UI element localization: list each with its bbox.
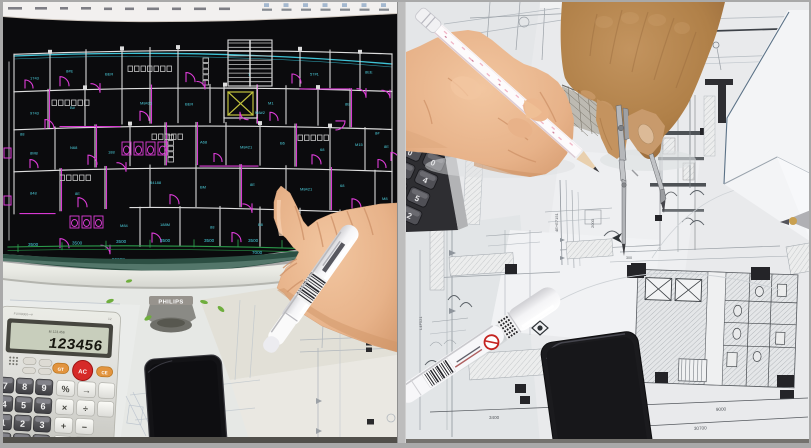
svg-text:300: 300: [626, 256, 632, 260]
svg-text:+: +: [61, 421, 67, 431]
svg-text:4E+E7151: 4E+E7151: [554, 212, 559, 232]
svg-text:3500: 3500: [72, 240, 83, 245]
svg-text:8E: 8E: [384, 144, 389, 149]
svg-text:88: 88: [210, 225, 215, 230]
svg-text:−: −: [82, 422, 88, 432]
svg-text:×: ×: [62, 402, 68, 412]
svg-text:3500: 3500: [116, 239, 127, 244]
svg-text:9743: 9743: [30, 111, 40, 116]
svg-text:8M8: 8M8: [30, 151, 39, 156]
svg-text:BM: BM: [200, 185, 206, 190]
svg-text:3500: 3500: [204, 238, 215, 243]
svg-text:GT: GT: [57, 367, 64, 372]
svg-text:8: 8: [22, 382, 28, 392]
svg-text:→: →: [82, 385, 92, 395]
svg-text:6: 6: [40, 401, 46, 411]
svg-text:68: 68: [340, 183, 345, 188]
svg-text:3: 3: [39, 420, 45, 430]
svg-text:M8421: M8421: [240, 145, 253, 150]
svg-text:L4F521: L4F521: [418, 316, 423, 330]
svg-text:3500: 3500: [28, 242, 39, 247]
svg-text:8E: 8E: [75, 191, 80, 196]
svg-text:B6: B6: [280, 141, 286, 146]
svg-text:N68: N68: [70, 145, 78, 150]
svg-text:8EE: 8EE: [365, 70, 373, 75]
svg-text:A68: A68: [200, 140, 208, 145]
svg-text:8#: 8#: [375, 130, 380, 135]
svg-text:B#: B#: [70, 105, 76, 110]
svg-text:88: 88: [20, 131, 25, 136]
svg-text:M8421: M8421: [140, 100, 153, 105]
svg-text:CE: CE: [101, 370, 108, 375]
svg-text:BER: BER: [185, 102, 193, 107]
svg-text:7: 7: [2, 381, 8, 391]
svg-text:M8: M8: [382, 196, 388, 201]
svg-text:8E: 8E: [250, 182, 255, 187]
svg-text:M84: M84: [120, 223, 129, 228]
svg-text:84188: 84188: [150, 180, 162, 185]
svg-text:PHILIPS: PHILIPS: [158, 300, 183, 306]
svg-text:123456: 123456: [47, 335, 104, 356]
svg-text:8E: 8E: [345, 101, 350, 106]
svg-text:188M: 188M: [160, 222, 170, 227]
svg-text:9000: 9000: [716, 406, 727, 412]
svg-text:AC: AC: [78, 369, 88, 376]
svg-text:2: 2: [20, 419, 26, 429]
svg-text:5: 5: [21, 400, 27, 410]
svg-text:3400: 3400: [489, 415, 500, 420]
svg-text:188: 188: [108, 149, 115, 154]
svg-text:12: 12: [108, 317, 112, 321]
svg-text:848: 848: [30, 191, 37, 196]
svg-text:M15: M15: [355, 142, 364, 147]
svg-text:3500: 3500: [160, 238, 171, 243]
svg-text:68: 68: [320, 147, 325, 152]
svg-text:3500: 3500: [248, 238, 259, 243]
svg-text:2000: 2000: [590, 218, 595, 228]
svg-text:30700: 30700: [694, 425, 707, 431]
svg-text:57#1: 57#1: [310, 72, 320, 77]
svg-text:M8421: M8421: [300, 186, 313, 191]
svg-text:7000: 7000: [252, 250, 263, 255]
svg-text:M1: M1: [268, 100, 274, 105]
svg-text:%: %: [61, 384, 70, 394]
svg-text:1743: 1743: [30, 76, 40, 81]
svg-text:8#E: 8#E: [66, 68, 73, 73]
svg-text:B8: B8: [258, 222, 264, 227]
svg-text:9: 9: [41, 383, 47, 393]
svg-text:M8#2: M8#2: [255, 110, 266, 115]
svg-text:BER: BER: [105, 72, 113, 77]
svg-text:÷: ÷: [83, 404, 89, 414]
